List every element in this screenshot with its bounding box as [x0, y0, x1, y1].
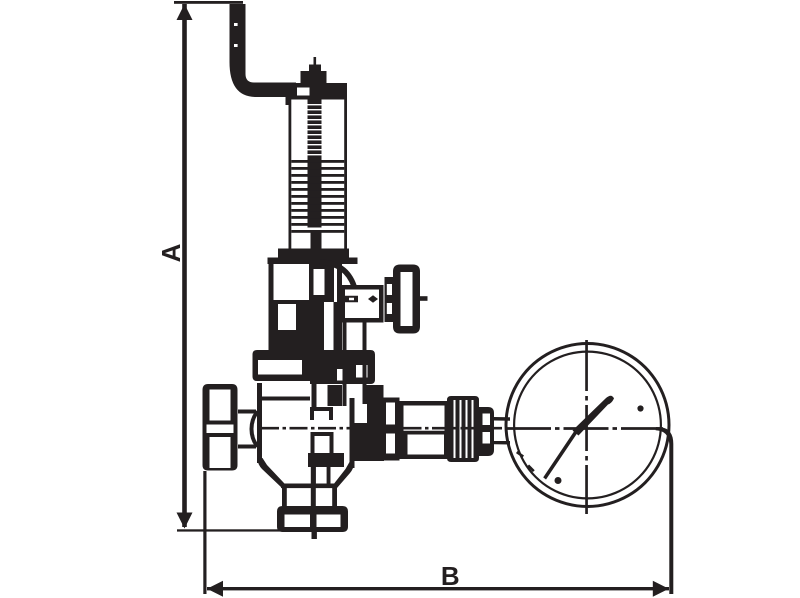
svg-text:A: A	[156, 243, 186, 262]
svg-text:B: B	[441, 561, 460, 591]
